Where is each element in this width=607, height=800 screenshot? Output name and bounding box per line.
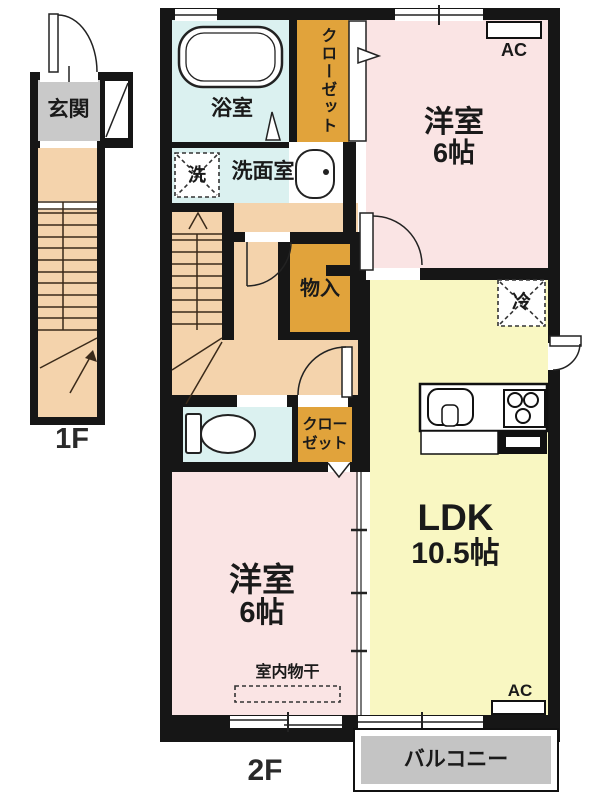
floor-plan: 玄関 浴室 クローゼット AC 洋室 6帖 洗 洗面室 物入 冷 LDK 10.… <box>0 0 607 800</box>
bathroom-label: 浴室 <box>182 95 282 123</box>
floor2-label: 2F <box>233 750 297 792</box>
closet-top-label: クローゼット <box>306 24 346 138</box>
entrance-label: 玄関 <box>37 95 100 125</box>
western-room-top-name: 洋室 <box>424 107 484 139</box>
western-room-top-size: 6帖 <box>433 139 475 167</box>
ldk-name: LDK <box>417 499 493 538</box>
floor1-label: 1F <box>46 420 98 458</box>
closet-bottom-line2: ゼット <box>302 435 347 454</box>
western-room-bottom-name: 洋室 <box>229 563 295 598</box>
balcony-label: バルコニー <box>361 736 551 784</box>
washer-label: 洗 <box>175 153 219 197</box>
ldk-label: LDK 10.5帖 <box>383 486 528 582</box>
western-room-bottom-size: 6帖 <box>239 598 284 628</box>
fridge-label: 冷 <box>498 280 545 326</box>
kitchen-counter <box>420 384 547 454</box>
washroom-label: 洗面室 <box>219 159 307 185</box>
closet-bottom-label: クロー ゼット <box>298 412 352 458</box>
western-room-bottom-label: 洋室 6帖 <box>198 548 326 643</box>
closet-bottom-line1: クロー <box>302 416 347 435</box>
toilet-fixture <box>186 414 255 453</box>
ac-top-label: AC <box>487 40 541 60</box>
ac-bottom-label: AC <box>495 681 545 701</box>
bathtub <box>179 27 282 87</box>
entrance-door-2f <box>548 336 581 370</box>
ac-unit-bottom <box>492 701 545 714</box>
western-room-top-label: 洋室 6帖 <box>390 97 518 177</box>
indoor-drying-label: 室内物干 <box>235 663 340 683</box>
ac-unit-top <box>487 22 541 38</box>
ldk-size: 10.5帖 <box>411 538 499 570</box>
storage-label: 物入 <box>290 274 350 304</box>
